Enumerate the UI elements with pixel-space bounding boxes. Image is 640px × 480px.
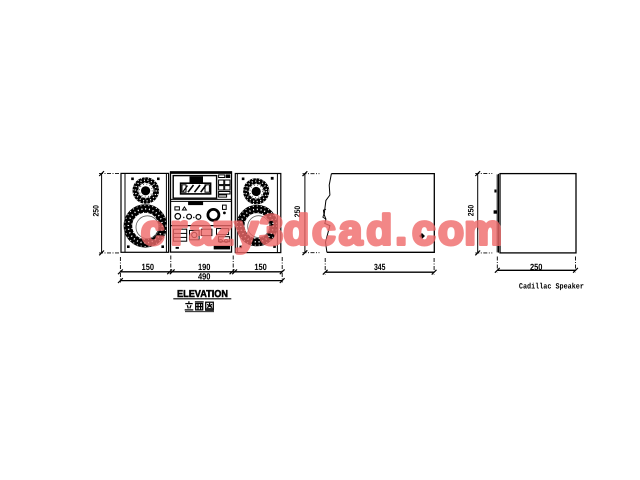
svg-text:250: 250	[91, 205, 100, 217]
svg-text:r: r	[170, 208, 187, 255]
svg-text:d: d	[283, 208, 309, 255]
svg-text:c: c	[141, 208, 165, 255]
svg-text:o: o	[438, 208, 464, 255]
svg-text:3: 3	[260, 208, 284, 255]
svg-text:150: 150	[142, 262, 155, 272]
svg-text:150: 150	[254, 262, 267, 272]
svg-text:d: d	[366, 208, 392, 255]
svg-text:250: 250	[530, 262, 543, 272]
svg-text:345: 345	[374, 262, 386, 272]
svg-text:Cadillac Speaker: Cadillac Speaker	[519, 282, 584, 291]
svg-text:c: c	[412, 208, 436, 255]
svg-text:490: 490	[198, 271, 211, 281]
svg-text:y: y	[235, 208, 259, 255]
svg-text:z: z	[212, 208, 233, 255]
svg-text:a: a	[189, 208, 213, 255]
svg-text:ELEVATION: ELEVATION	[177, 289, 228, 300]
svg-text:c: c	[312, 208, 336, 255]
svg-text:190: 190	[198, 262, 211, 272]
svg-text:a: a	[339, 208, 363, 255]
svg-text:.: .	[395, 208, 407, 255]
svg-text:m: m	[464, 208, 502, 255]
